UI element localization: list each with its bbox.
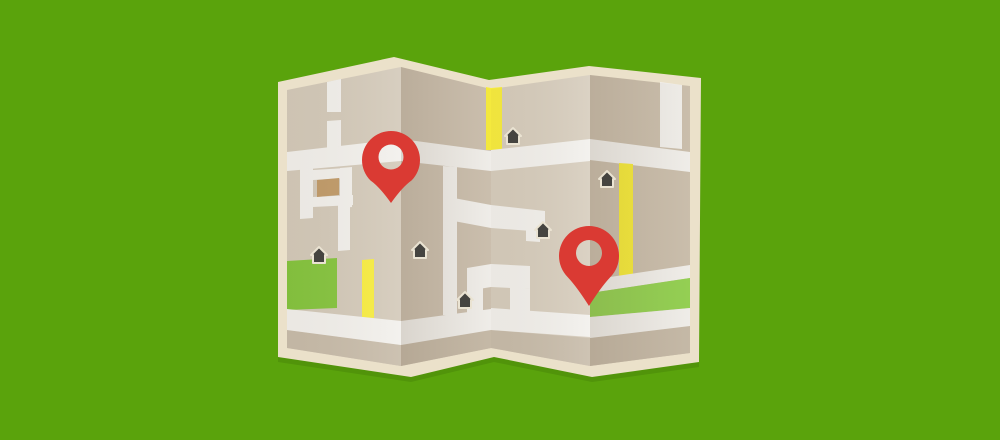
folded-map-illustration [0,0,1000,440]
panel-1-park-rect [287,258,337,310]
panel-1 [287,67,401,366]
panel-1-lower-vertical-road [338,204,350,251]
panel-4-top-vertical-road [660,82,682,149]
panel-3-yellow-road [491,87,502,150]
panel-3-zigzag-column [510,287,530,312]
panel-1-building-rect [317,178,339,197]
panel-1-yellow-road [362,259,374,318]
panel-3 [491,75,590,366]
panel-1-top-vertical-road-b [327,120,341,148]
panel-1-top-vertical-road-a [327,79,341,112]
panel-2 [401,67,491,366]
panel-3-zigzag-top-road [491,264,530,289]
panel-2-mid-vertical-road [443,166,457,316]
panel-2-yellow-sliver [486,87,491,150]
panel-4 [590,75,690,366]
panel-2-valley-stub-h [467,264,491,291]
illustration-canvas [0,0,1000,440]
panel-4-yellow-road [619,163,633,278]
panel-1-mid-vertical-road [300,167,313,219]
